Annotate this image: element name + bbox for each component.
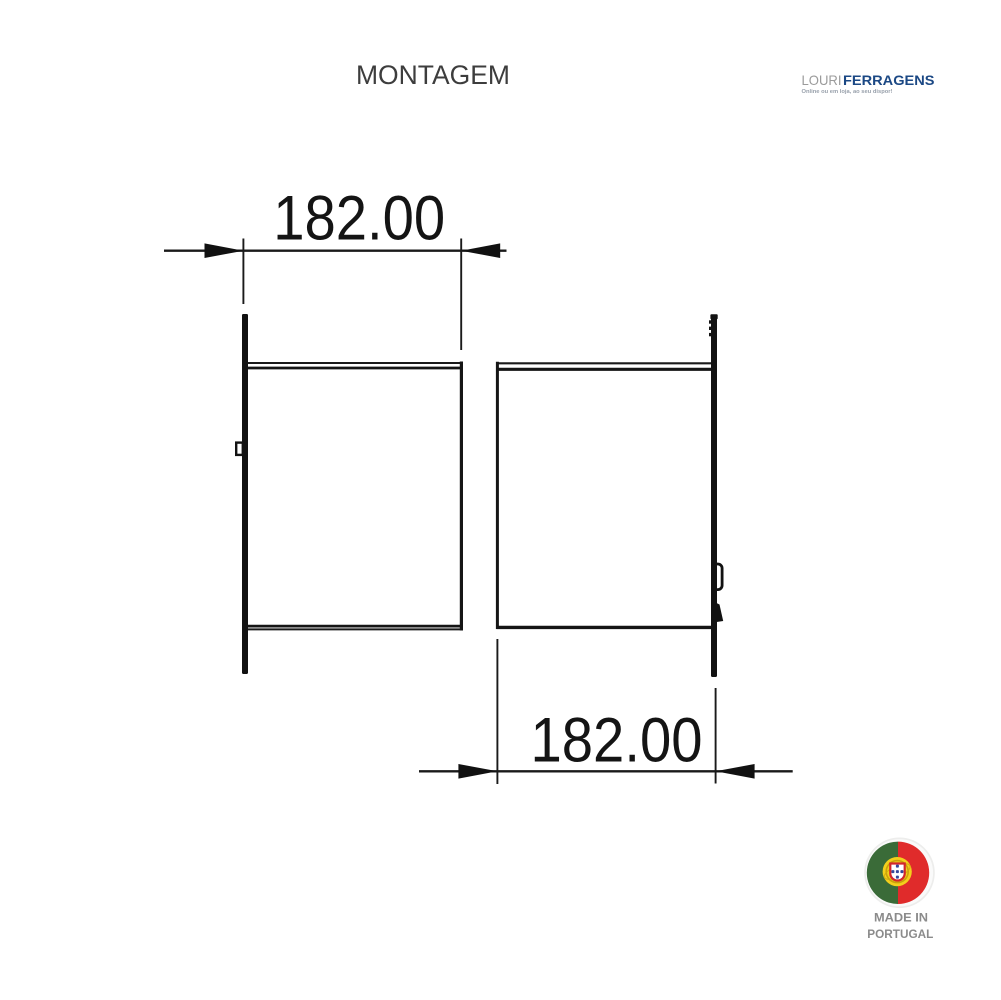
svg-text:182.00: 182.00 [531,706,703,776]
svg-text:182.00: 182.00 [273,184,445,254]
svg-text:Online ou em loja, ao seu disp: Online ou em loja, ao seu dispor! [802,89,893,95]
svg-text:MONTAGEM: MONTAGEM [356,60,510,90]
svg-text:LOURI: LOURI [802,72,842,88]
svg-text:MADE IN: MADE IN [874,911,928,925]
svg-text:PORTUGAL: PORTUGAL [867,927,933,941]
svg-text:FERRAGENS: FERRAGENS [843,72,935,88]
